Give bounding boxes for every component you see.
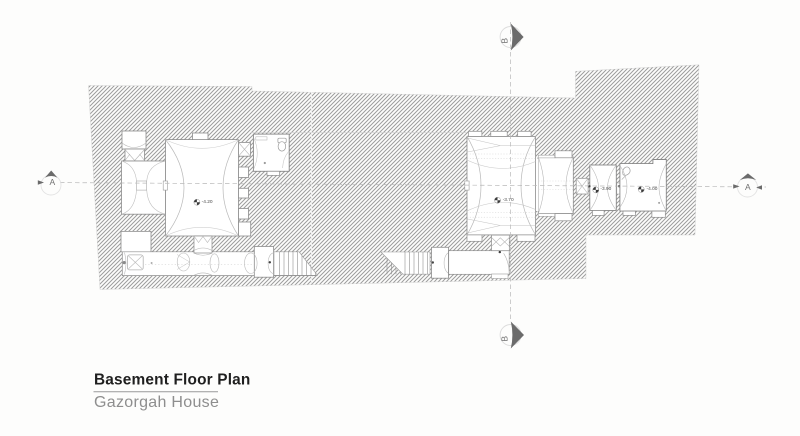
svg-text:-4.00: -4.00 [647, 186, 658, 192]
svg-text:-4.20: -4.20 [202, 199, 213, 205]
svg-text:B: B [500, 38, 510, 44]
svg-text:B: B [500, 336, 510, 342]
svg-text:-3.70: -3.70 [503, 197, 514, 203]
svg-text:Basement Floor Plan: Basement Floor Plan [94, 371, 251, 388]
svg-text:-3.90: -3.90 [600, 186, 611, 192]
svg-text:Gazorgah House: Gazorgah House [94, 394, 219, 411]
svg-text:A: A [49, 177, 55, 187]
svg-text:A: A [745, 182, 751, 192]
